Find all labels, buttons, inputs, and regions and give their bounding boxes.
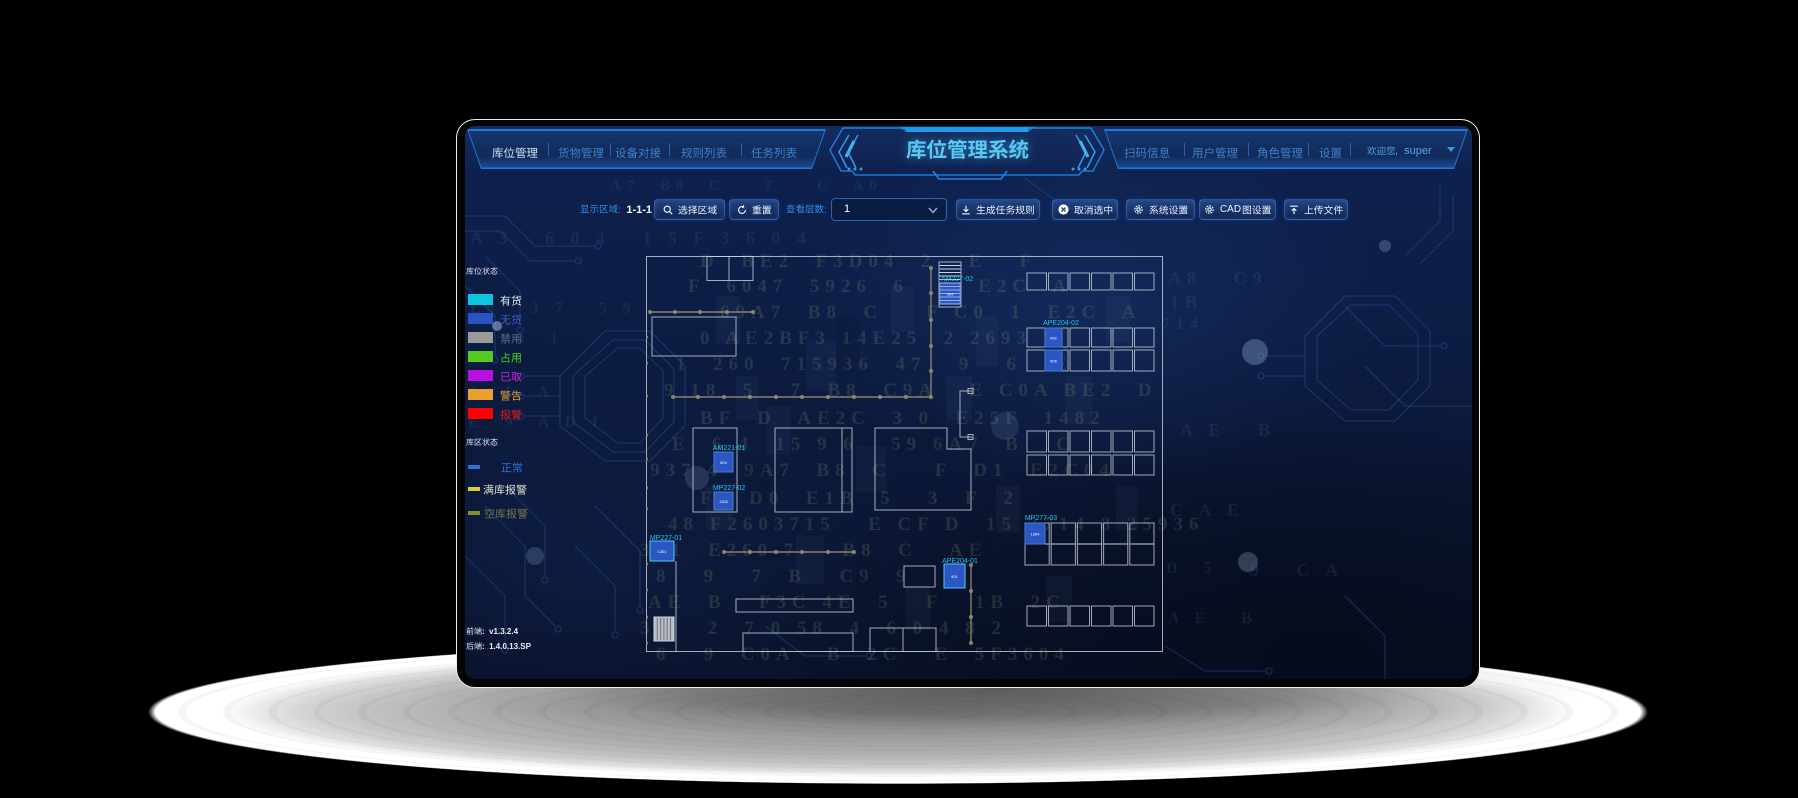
svg-text:MP227-01: MP227-01 bbox=[650, 535, 682, 542]
svg-text:APE204-01: APE204-01 bbox=[942, 558, 978, 565]
svg-text:APE204-02: APE204-02 bbox=[1043, 320, 1079, 327]
svg-text:MP277-03: MP277-03 bbox=[1025, 515, 1057, 522]
svg-text:504: 504 bbox=[720, 460, 727, 465]
svg-text:901: 901 bbox=[951, 574, 958, 579]
svg-text:506: 506 bbox=[1050, 359, 1057, 364]
svg-text:992: 992 bbox=[1050, 336, 1057, 341]
svg-text:MP227-02: MP227-02 bbox=[713, 485, 745, 492]
svg-text:AM221-01: AM221-01 bbox=[713, 445, 745, 452]
svg-text:AM227-02: AM227-02 bbox=[941, 276, 973, 283]
svg-text:1304: 1304 bbox=[1031, 532, 1041, 537]
svg-text:1301: 1301 bbox=[658, 549, 668, 554]
svg-text:1302: 1302 bbox=[719, 499, 729, 504]
svg-text:504: 504 bbox=[947, 292, 954, 297]
